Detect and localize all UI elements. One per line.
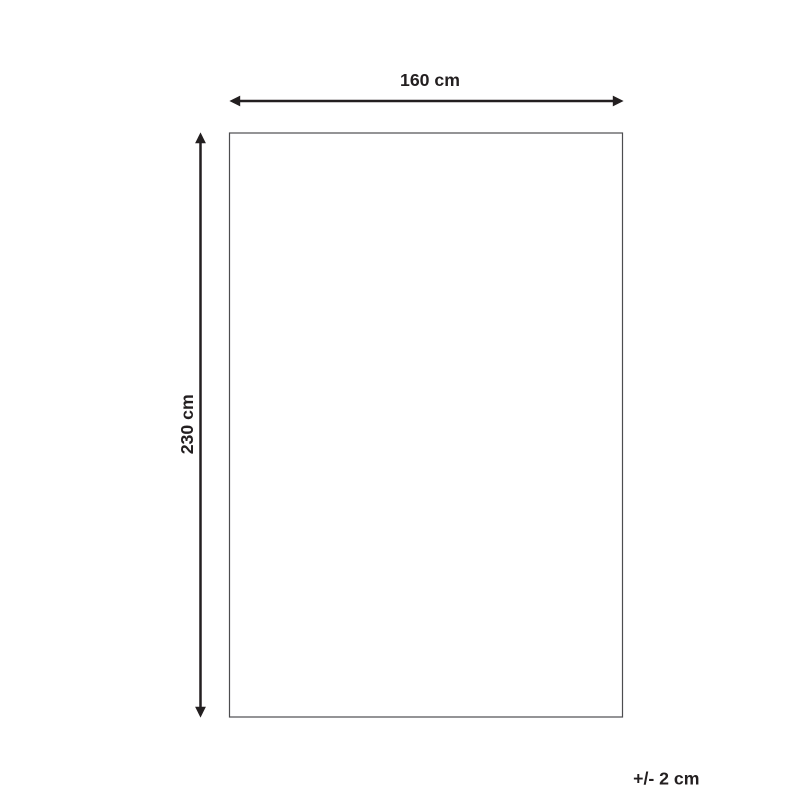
svg-text:160 cm: 160 cm (400, 70, 460, 90)
svg-text:230 cm: 230 cm (177, 394, 197, 454)
svg-text:+/- 2 cm: +/- 2 cm (633, 768, 699, 788)
